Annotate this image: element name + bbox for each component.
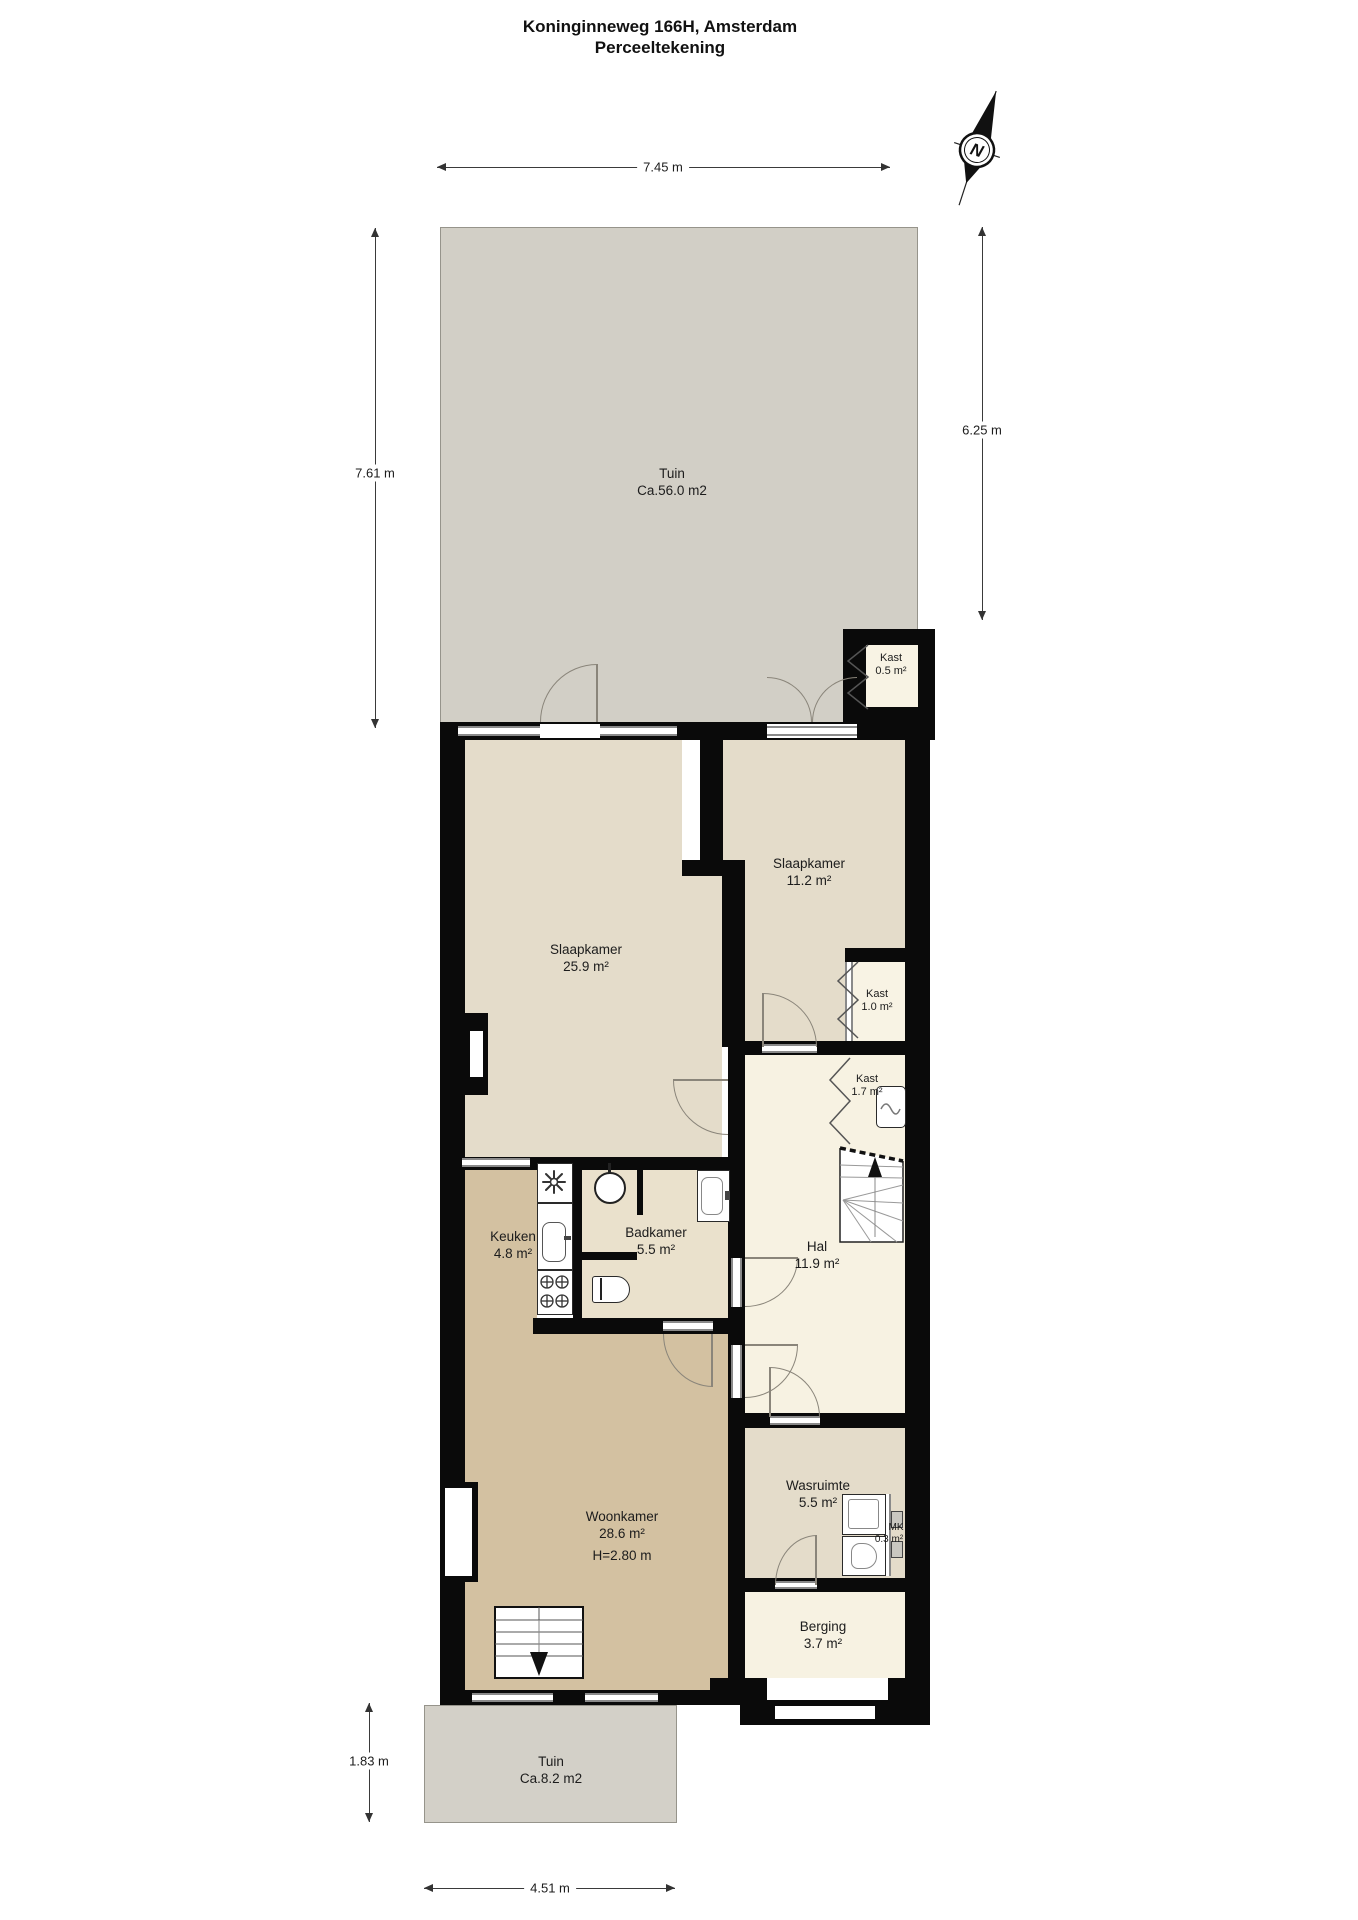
door-panel <box>596 664 598 722</box>
kitchen-fan-unit <box>537 1163 573 1203</box>
kitchen-sink <box>537 1203 573 1270</box>
room-label-kast-10: Kast1.0 m² <box>861 988 892 1014</box>
sink-faucet-icon <box>564 1236 571 1240</box>
door-opening <box>540 724 600 738</box>
room-label-wasruimte: Wasruimte5.5 m² <box>786 1477 850 1511</box>
room-label-slaapkamer-1: Slaapkamer25.9 m² <box>550 941 622 975</box>
wall <box>573 1163 582 1320</box>
stove-burners-icon <box>538 1271 571 1313</box>
room-label-woonkamer: Woonkamer28.6 m² H=2.80 m <box>586 1508 659 1564</box>
room-label-keuken: Keuken4.8 m² <box>490 1228 536 1262</box>
wall <box>722 875 745 1047</box>
door-panel <box>762 993 764 1047</box>
door-panel <box>673 1079 728 1081</box>
room-label-berging: Berging3.7 m² <box>800 1618 847 1652</box>
room-label-hal: Hal11.9 m² <box>795 1238 840 1272</box>
title-subtitle: Perceeltekening <box>330 37 990 58</box>
door-panel <box>745 1344 798 1346</box>
dimension-top-label: 7.45 m <box>637 159 689 176</box>
door-panel <box>711 1334 713 1387</box>
bifold-door-kast-10 <box>836 960 860 1040</box>
wall <box>905 722 930 1725</box>
wall <box>682 860 745 876</box>
door-panel <box>815 1535 817 1585</box>
dryer-drum-icon <box>851 1543 877 1569</box>
dimension-left-lower-label: 1.83 m <box>343 1753 395 1770</box>
door-sill <box>770 1416 820 1425</box>
wall-niche <box>445 1482 478 1582</box>
porch-passage <box>775 1706 875 1719</box>
washbasin-bowl-icon <box>701 1177 723 1215</box>
toilet <box>592 1276 630 1303</box>
porch-opening <box>767 1678 888 1700</box>
dimension-bottom-label: 4.51 m <box>524 1880 576 1897</box>
window <box>472 1693 553 1702</box>
toilet-tank-line <box>600 1278 602 1300</box>
window <box>585 1693 658 1702</box>
washbasin <box>697 1170 730 1222</box>
chimney-inset <box>470 1031 483 1077</box>
wall <box>728 1578 930 1592</box>
room-label-tuin-bottom: TuinCa.8.2 m2 <box>520 1753 582 1787</box>
staircase-hal <box>839 1145 905 1245</box>
room-label-mk-area: 0.3 m² <box>875 1534 903 1545</box>
floorplan-canvas: Koninginneweg 166H, Amsterdam Perceeltek… <box>0 0 1358 1920</box>
washer-door-icon <box>848 1499 879 1529</box>
fan-icon <box>538 1164 571 1201</box>
title-address: Koninginneweg 166H, Amsterdam <box>330 16 990 37</box>
room-label-mk-name: MK <box>889 1522 904 1533</box>
room-label-badkamer: Badkamer5.5 m² <box>625 1224 687 1258</box>
shower-head-icon <box>594 1172 626 1204</box>
wall <box>533 1318 745 1334</box>
sink-basin-icon <box>542 1222 566 1262</box>
room-label-kast-05: Kast0.5 m² <box>875 652 906 678</box>
page-title: Koninginneweg 166H, Amsterdam Perceeltek… <box>330 16 990 58</box>
staircase-woonkamer <box>494 1606 584 1679</box>
wall <box>728 1413 745 1690</box>
compass-north-icon: N <box>927 86 1027 210</box>
washbasin-faucet-icon <box>725 1191 730 1200</box>
door-panel <box>745 1257 798 1259</box>
wall-shower-divider <box>637 1163 643 1215</box>
door-sill <box>767 726 857 736</box>
door-sill <box>731 1345 742 1398</box>
room-label-kast-17: Kast1.7 m² <box>851 1073 882 1099</box>
bifold-door-kast-17 <box>828 1056 852 1146</box>
room-label-tuin-top: TuinCa.56.0 m2 <box>637 465 707 499</box>
wall <box>700 740 723 862</box>
dimension-right-label: 6.25 m <box>956 422 1008 439</box>
dimension-left-upper-label: 7.61 m <box>349 465 401 482</box>
door-sill <box>731 1258 742 1307</box>
window <box>600 726 677 736</box>
kitchen-stove <box>537 1270 573 1315</box>
door-sill <box>663 1321 713 1331</box>
window <box>458 726 540 736</box>
room-label-slaapkamer-2: Slaapkamer11.2 m² <box>773 855 845 889</box>
interior-window <box>462 1158 530 1167</box>
door-panel <box>769 1367 771 1417</box>
